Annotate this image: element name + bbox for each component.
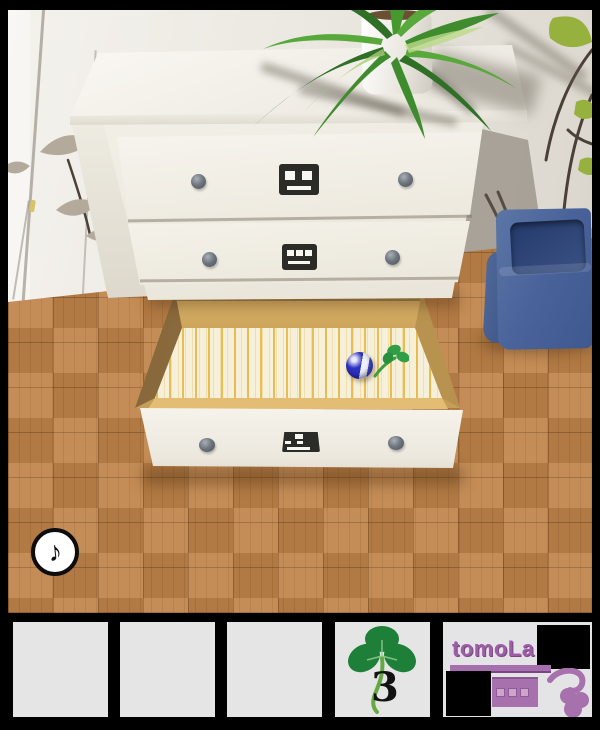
wastebasket[interactable] <box>485 203 592 355</box>
drawer-middle-face-icon <box>282 244 317 270</box>
logo-subtext-box <box>492 677 538 707</box>
room-scene: ♪ <box>8 10 592 613</box>
open-drawer[interactable] <box>130 288 470 488</box>
inventory-slot-3[interactable] <box>227 622 322 717</box>
drawer-bottom-face-icon <box>282 432 320 452</box>
drawer-knob[interactable] <box>199 438 215 452</box>
game-stage: ♪ 3 tomoLa <box>0 0 600 730</box>
drawer-knob[interactable] <box>385 250 400 265</box>
drawer-knob[interactable] <box>388 436 404 450</box>
logo-subtext-glyphs <box>520 688 529 697</box>
plant-leaves[interactable] <box>233 10 553 155</box>
clover-sprout[interactable] <box>365 342 409 382</box>
clover-count: 3 <box>371 664 399 711</box>
inventory-slot-5-logo[interactable]: tomoLa <box>443 622 592 717</box>
inventory-slot-1[interactable] <box>13 622 108 717</box>
drawer-knob[interactable] <box>202 252 217 267</box>
inventory-slot-2[interactable] <box>120 622 215 717</box>
logo-subtext-glyphs <box>496 688 505 697</box>
logo-clover-swirl-icon <box>546 668 592 717</box>
logo-title: tomoLa <box>452 636 534 662</box>
open-drawer-front[interactable] <box>135 406 465 480</box>
logo-black-square-bottom <box>446 671 491 716</box>
music-note-icon: ♪ <box>47 537 64 566</box>
inventory-bar: 3 tomoLa <box>0 613 600 730</box>
inventory-slot-4-clover[interactable]: 3 <box>335 622 430 717</box>
drawer-knob[interactable] <box>191 174 206 189</box>
drawer-knob[interactable] <box>398 172 413 187</box>
drawer-top-face-icon <box>279 164 319 195</box>
logo-subtext-glyphs <box>508 688 517 697</box>
logo-black-square-top <box>537 625 590 669</box>
music-toggle-button[interactable]: ♪ <box>31 528 79 576</box>
